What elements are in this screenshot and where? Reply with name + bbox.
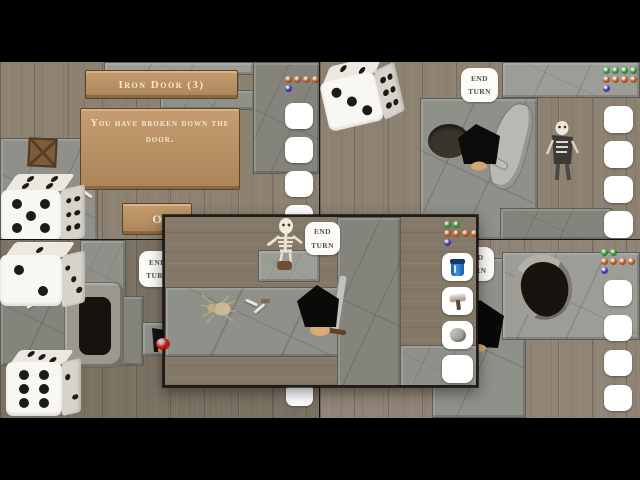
green-gem (444, 221, 451, 228)
ok-button-label: O (152, 212, 161, 227)
die[interactable] (0, 242, 88, 306)
blue-gem (603, 85, 610, 92)
dice-slot-column (285, 103, 313, 231)
orange-gem (444, 230, 451, 237)
dice-slot[interactable] (604, 385, 632, 411)
player-character (295, 273, 355, 353)
stone-icon (449, 327, 466, 342)
orange-gem (312, 76, 319, 83)
die[interactable] (1, 174, 85, 240)
orange-gem (630, 76, 637, 83)
dice-slot-column (604, 106, 633, 238)
orange-gem (601, 258, 608, 265)
player2-view: END TURN (320, 62, 640, 240)
wooden-crate (27, 137, 57, 167)
green-gem (603, 67, 610, 74)
orange-gem (619, 258, 626, 265)
hammer-icon (448, 291, 468, 311)
stone-item-slot[interactable] (442, 321, 473, 349)
dice-slot[interactable] (604, 141, 633, 168)
orange-gem (303, 76, 310, 83)
dialog-title: Iron Door (3) (118, 79, 204, 91)
dice-slot[interactable] (604, 211, 633, 238)
dice-slot-column (604, 280, 632, 411)
bones (261, 299, 270, 302)
blue-gem (444, 239, 451, 246)
green-gem (601, 249, 608, 256)
item-slot-column (442, 253, 473, 383)
die-front-face (1, 190, 61, 240)
green-gem (612, 67, 619, 74)
active-player-popup: END TURN (163, 215, 478, 387)
red-gem (156, 338, 170, 350)
end-turn-button[interactable]: END TURN (305, 222, 340, 255)
empty-item-slot[interactable] (442, 355, 473, 383)
green-gem (453, 221, 460, 228)
enemy-skeleton (546, 120, 580, 186)
orange-gem (471, 230, 478, 237)
hammer-item-slot[interactable] (442, 287, 473, 315)
dialog-title-board: Iron Door (3) (85, 70, 238, 99)
die[interactable] (320, 62, 408, 132)
dice-slot[interactable] (604, 176, 633, 203)
orange-gem (610, 258, 617, 265)
dice-slot[interactable] (285, 171, 313, 197)
potion-icon (451, 259, 464, 276)
orange-gem (628, 258, 635, 265)
dice-slot[interactable] (604, 280, 632, 306)
dice-slot[interactable] (285, 137, 313, 163)
dialog-message-board: You have broken down the door. (80, 108, 240, 190)
die-front-face (320, 71, 385, 132)
dice-slot[interactable] (604, 350, 632, 376)
dice-slot[interactable] (604, 106, 633, 133)
die[interactable] (6, 350, 82, 418)
gem-counter (601, 249, 635, 276)
orange-gem (294, 76, 301, 83)
die-front-face (0, 255, 62, 306)
spider (200, 293, 238, 325)
orange-gem (285, 76, 292, 83)
gem-counter (603, 67, 637, 94)
dice-slot[interactable] (285, 103, 313, 129)
game-screen: Iron Door (3) You have broken down the d… (0, 0, 640, 480)
orange-gem (612, 76, 619, 83)
green-gem (621, 67, 628, 74)
red-gem-indicator (156, 338, 170, 352)
end-turn-button[interactable]: END TURN (461, 68, 498, 102)
die-front-face (6, 362, 62, 416)
gem-counter (444, 221, 478, 248)
end-turn-label: END TURN (310, 225, 335, 252)
dice-slot[interactable] (604, 315, 632, 341)
blue-gem (601, 267, 608, 274)
enemy-skeleton (265, 217, 305, 273)
orange-gem (603, 76, 610, 83)
dialog-message: You have broken down the door. (91, 118, 230, 145)
potion-item-slot[interactable] (442, 253, 473, 281)
stone-tile (500, 208, 612, 240)
blue-gem (285, 85, 292, 92)
gem-counter (285, 76, 319, 94)
orange-gem (453, 230, 460, 237)
end-turn-label: END TURN (466, 72, 493, 99)
die-side-face (62, 358, 81, 416)
die-side-face (62, 250, 85, 307)
green-gem (610, 249, 617, 256)
orange-gem (621, 76, 628, 83)
green-gem (630, 67, 637, 74)
orange-gem (462, 230, 469, 237)
player1-view: Iron Door (3) You have broken down the d… (0, 62, 320, 240)
split-screen-play-area: Iron Door (3) You have broken down the d… (0, 62, 640, 418)
die-side-face (61, 184, 85, 240)
player-character (456, 120, 508, 180)
